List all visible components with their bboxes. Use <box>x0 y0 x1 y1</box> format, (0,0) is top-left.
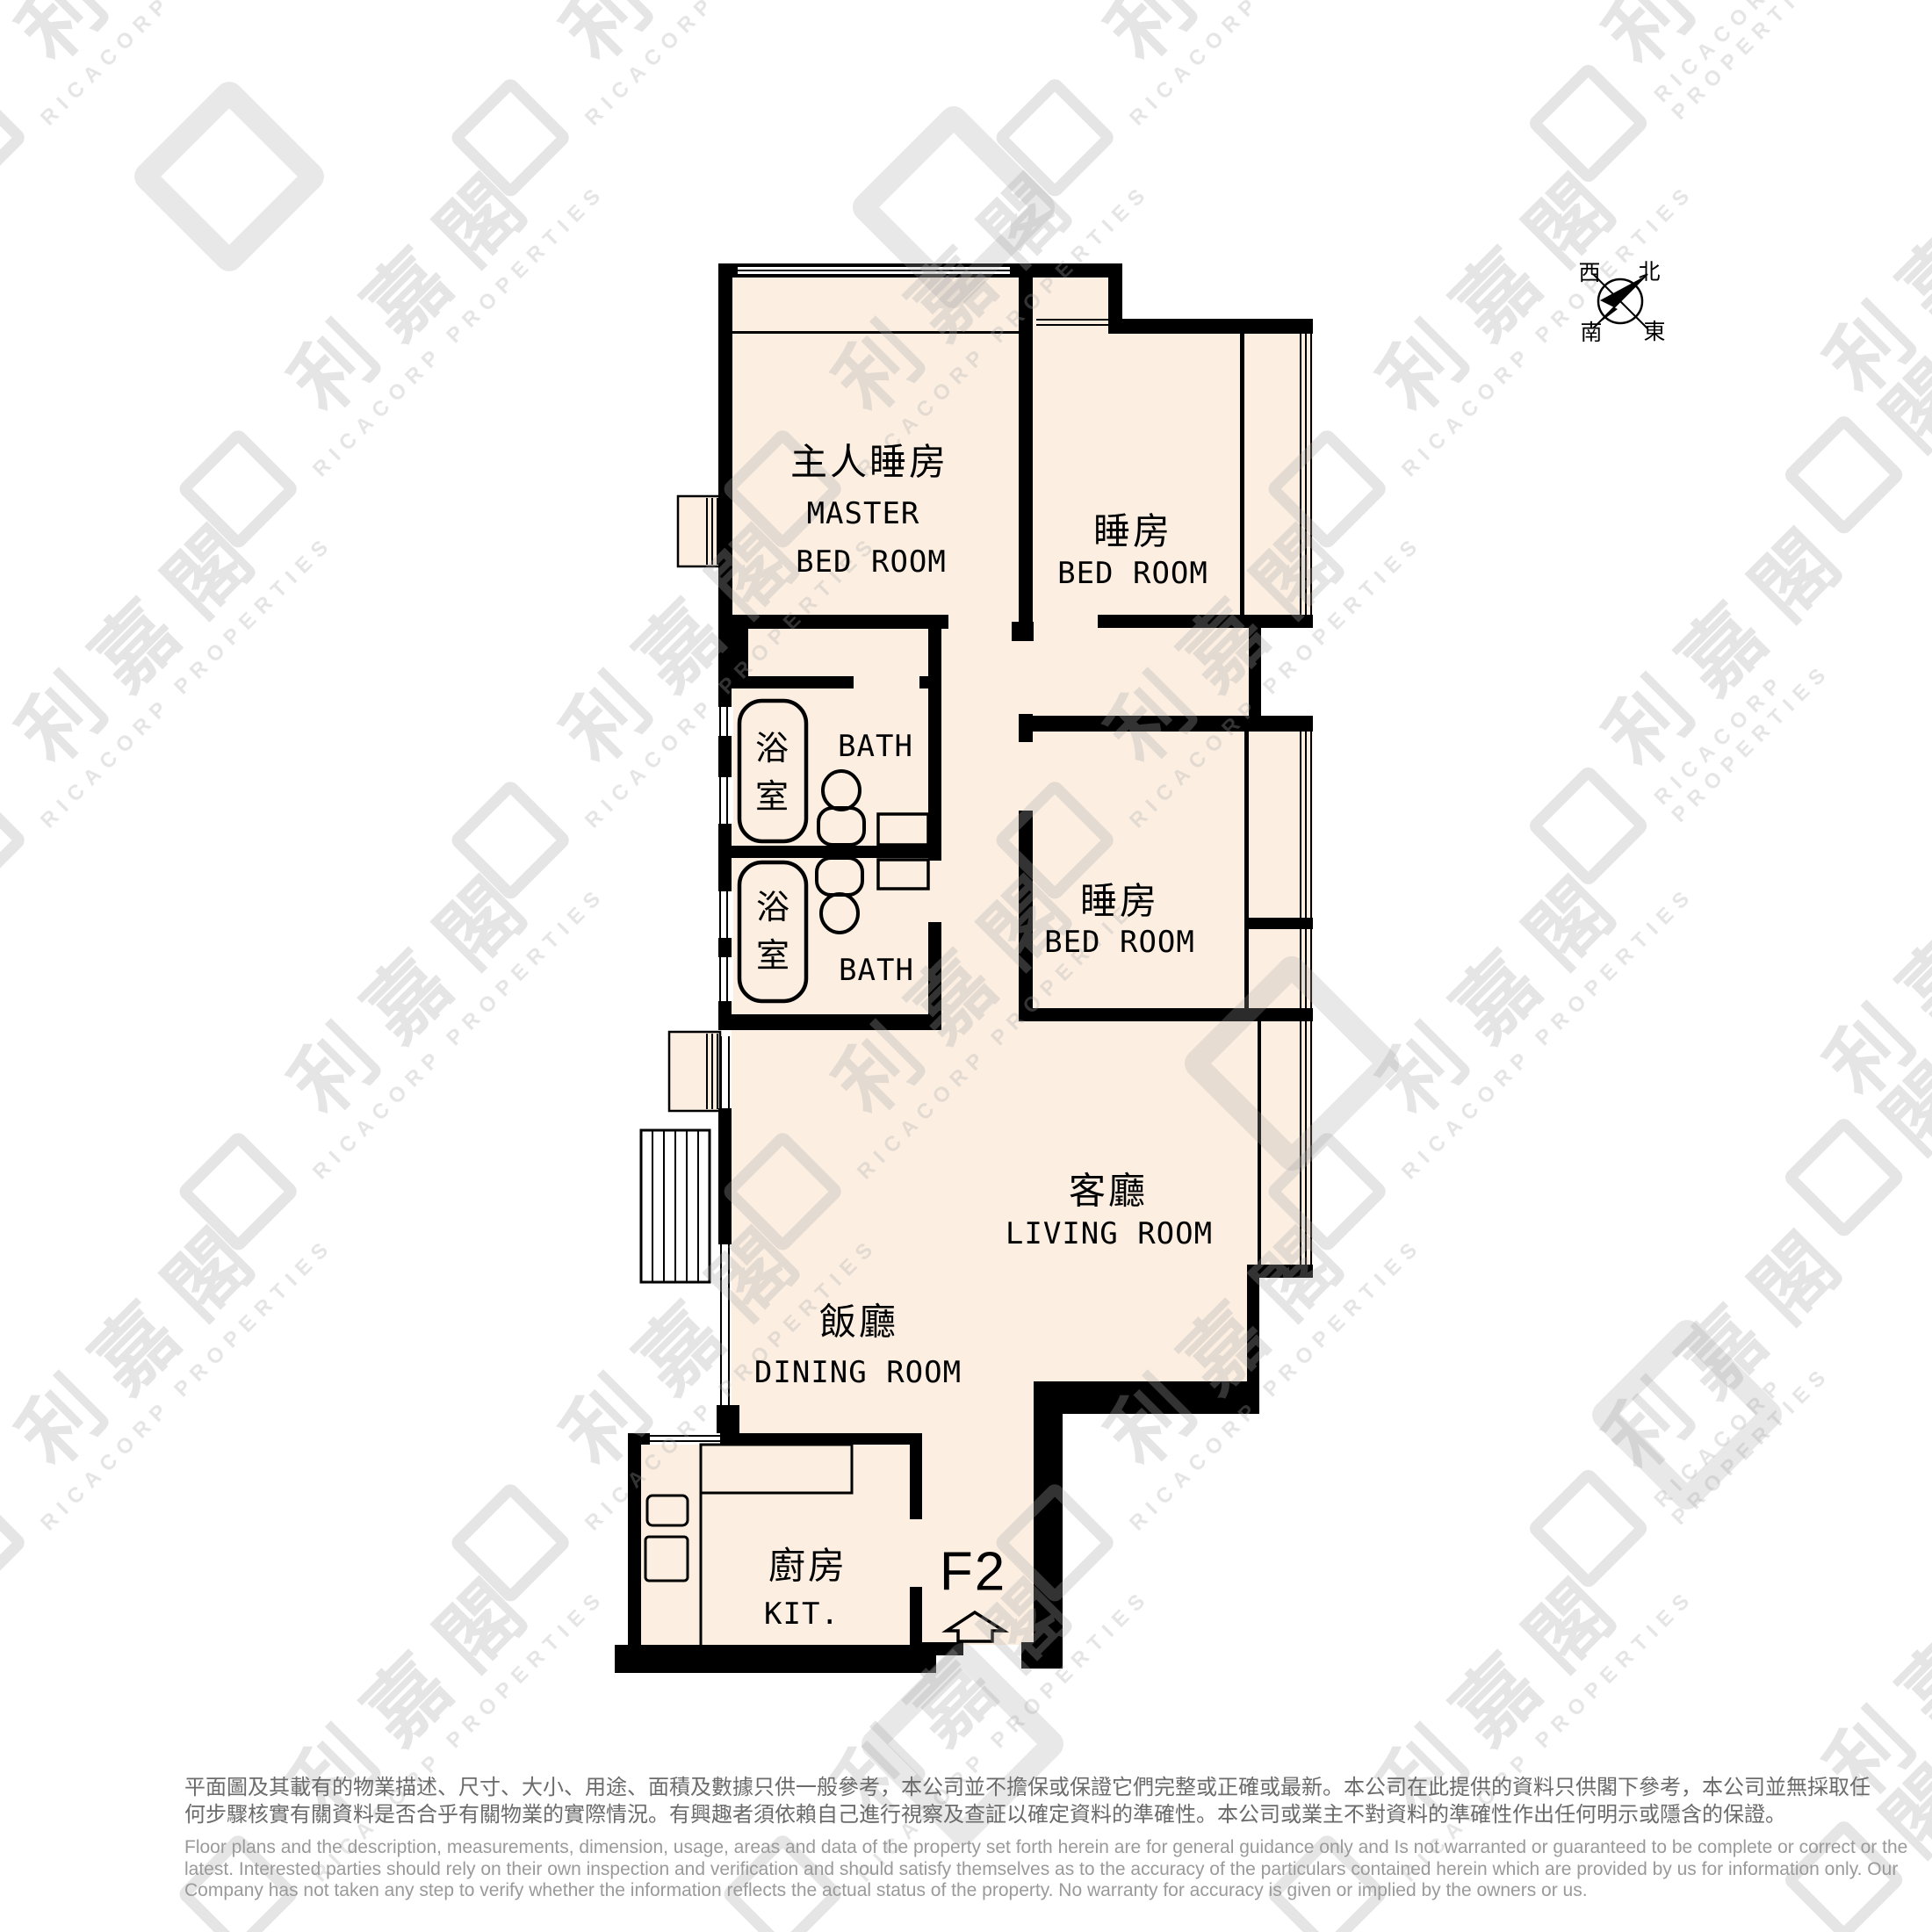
label-dining-room-zh: 飯廳 <box>819 1293 898 1346</box>
disclaimer-en-line1: Floor plans and the description, measure… <box>184 1837 1907 1859</box>
label-bath2-en: BATH <box>839 953 914 988</box>
label-bath1-en: BATH <box>838 729 913 764</box>
label-master-bedroom-en2: BED ROOM <box>796 544 947 580</box>
label-master-bedroom-zh: 主人睡房 <box>790 433 948 487</box>
label-bath1-zh: 浴 室 <box>755 725 789 822</box>
louver-window <box>641 1130 710 1282</box>
disclaimer-en-line2: latest. Interested parties should rely o… <box>184 1859 1907 1881</box>
label-unit-number: F2 <box>940 1541 1006 1604</box>
label-bedroom2-zh: 睡房 <box>1080 872 1159 926</box>
label-bedroom1-en: BED ROOM <box>1057 556 1208 591</box>
disclaimer-english: Floor plans and the description, measure… <box>184 1837 1907 1902</box>
compass-label-west: 西 <box>1578 256 1600 287</box>
label-living-room-en: LIVING ROOM <box>1006 1216 1213 1251</box>
label-kitchen-en: KIT. <box>764 1597 840 1632</box>
floorplan-svg <box>0 0 1932 1932</box>
label-bedroom2-en: BED ROOM <box>1044 925 1195 960</box>
compass-label-north: 北 <box>1638 255 1660 286</box>
compass-label-south: 南 <box>1580 315 1602 347</box>
label-bath2-zh: 浴 室 <box>756 884 789 981</box>
label-dining-room-en: DINING ROOM <box>754 1355 962 1390</box>
label-kitchen-zh: 廚房 <box>768 1537 847 1590</box>
label-master-bedroom-en1: MASTER <box>807 496 920 531</box>
label-bedroom1-zh: 睡房 <box>1093 502 1172 556</box>
disclaimer-chinese: 平面圖及其載有的物業描述、尺寸、大小、用途、面積及數據只供一般參考，本公司並不擔… <box>184 1774 1871 1828</box>
compass-label-east: 東 <box>1643 314 1665 346</box>
disclaimer-en-line3: Company has not taken any step to verify… <box>184 1880 1907 1902</box>
disclaimer-zh-line2: 何步驟核實有關資料是否合乎有關物業的實際情況。有興趣者須依賴自己進行視察及查証以… <box>184 1801 1871 1828</box>
floorplan-page: 利嘉閣RICACORP PROPERTIES利嘉閣RICACORP PROPER… <box>0 0 1932 1932</box>
disclaimer-zh-line1: 平面圖及其載有的物業描述、尺寸、大小、用途、面積及數據只供一般參考，本公司並不擔… <box>184 1774 1871 1801</box>
label-living-room-zh: 客廳 <box>1069 1162 1148 1215</box>
